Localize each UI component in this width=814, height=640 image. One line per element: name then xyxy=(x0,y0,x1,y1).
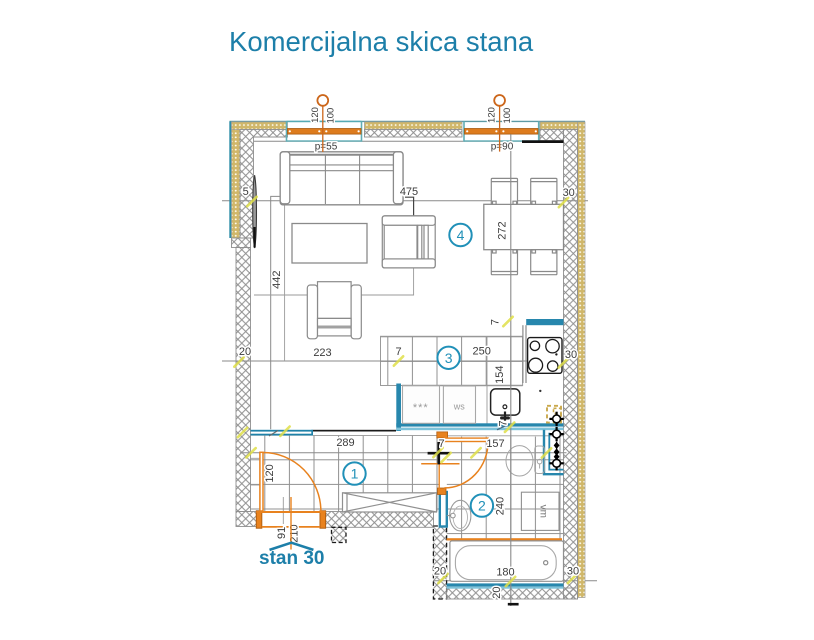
svg-text:91: 91 xyxy=(276,527,288,539)
svg-text:5: 5 xyxy=(243,186,249,198)
svg-text:272: 272 xyxy=(497,221,509,239)
svg-text:100: 100 xyxy=(502,108,513,124)
svg-text:20: 20 xyxy=(239,346,251,358)
svg-text:240: 240 xyxy=(495,497,507,515)
svg-text:210: 210 xyxy=(288,524,300,542)
svg-text:120: 120 xyxy=(264,464,276,482)
svg-text:120: 120 xyxy=(310,107,321,123)
svg-text:442: 442 xyxy=(271,271,283,289)
svg-text:180: 180 xyxy=(496,566,514,578)
svg-text:3: 3 xyxy=(445,350,453,366)
svg-text:ws: ws xyxy=(453,402,465,412)
svg-text:154: 154 xyxy=(494,366,506,384)
svg-text:30: 30 xyxy=(567,566,579,578)
svg-text:1: 1 xyxy=(351,466,359,482)
svg-text:30: 30 xyxy=(565,349,577,361)
svg-text:stan 30: stan 30 xyxy=(259,548,324,569)
svg-text:7: 7 xyxy=(438,438,444,450)
svg-text:2: 2 xyxy=(478,498,486,514)
svg-text:100: 100 xyxy=(325,108,336,124)
svg-text:475: 475 xyxy=(400,186,418,198)
svg-text:***: *** xyxy=(413,402,429,414)
svg-text:289: 289 xyxy=(336,437,354,449)
svg-text:157: 157 xyxy=(486,438,504,450)
svg-text:7: 7 xyxy=(489,319,501,325)
svg-text:30: 30 xyxy=(563,187,575,199)
svg-text:Komercijalna skica stana: Komercijalna skica stana xyxy=(229,26,534,57)
svg-text:7: 7 xyxy=(395,346,401,358)
svg-text:p=55: p=55 xyxy=(315,142,338,153)
svg-text:120: 120 xyxy=(487,107,498,123)
svg-text:20: 20 xyxy=(491,586,503,598)
svg-text:p=90: p=90 xyxy=(491,142,514,153)
svg-text:223: 223 xyxy=(313,347,331,359)
svg-text:vm: vm xyxy=(537,505,548,518)
svg-text:4: 4 xyxy=(457,227,465,243)
svg-text:20: 20 xyxy=(434,566,446,578)
svg-text:7: 7 xyxy=(498,420,510,426)
svg-text:250: 250 xyxy=(473,346,491,358)
